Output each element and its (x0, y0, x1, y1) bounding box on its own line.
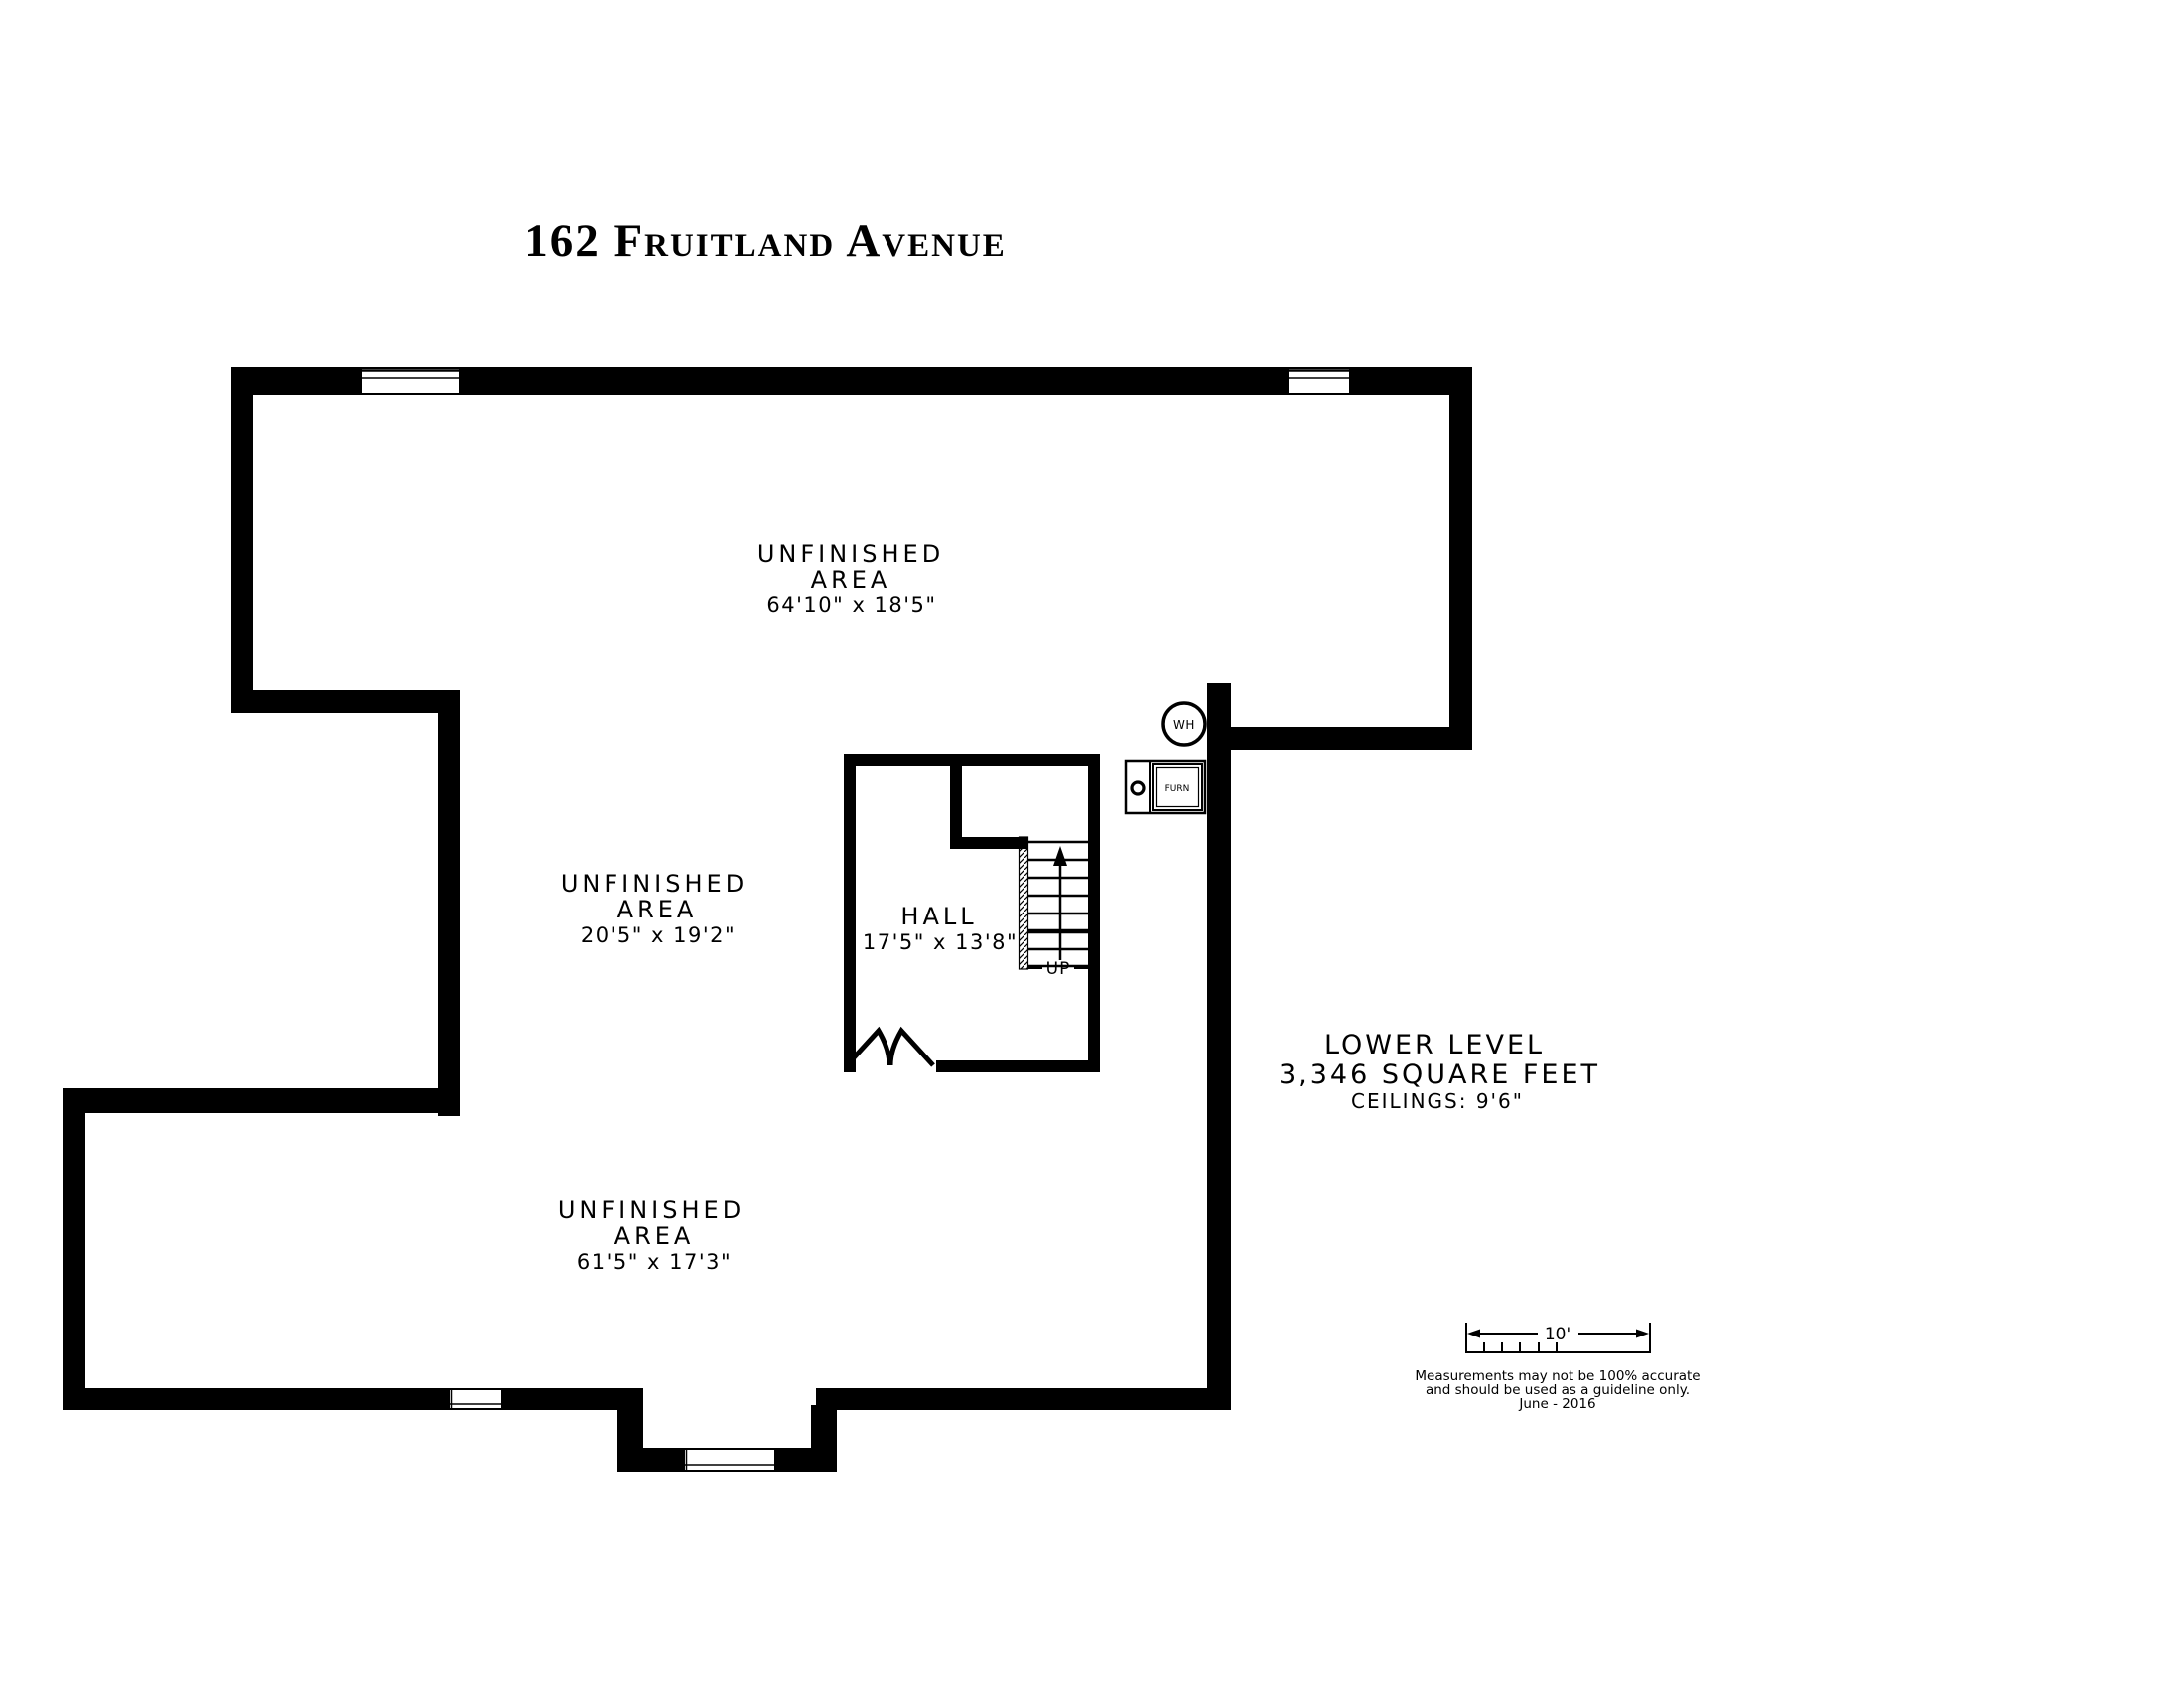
wall-upper-section-bottom (1207, 727, 1472, 750)
furnace-pipe-icon (1132, 782, 1144, 794)
room-name: HALL (900, 903, 977, 930)
stairs-up-label: UP (1046, 959, 1071, 979)
window-bottom (450, 1390, 501, 1408)
room-label-hall: HALL 17'5" x 13'8" (863, 903, 1018, 954)
up-arrow-icon (1053, 846, 1067, 960)
hall-wall-left (844, 754, 856, 1072)
page-title: 162 Fruitland Avenue (524, 215, 1007, 267)
room-name-line1: UNFINISHED (558, 1196, 745, 1224)
window-bay (685, 1450, 774, 1470)
exterior-walls (63, 367, 1472, 1472)
staircase: UP (1020, 837, 1089, 979)
floor-plan-page: 162 Fruitland Avenue (0, 0, 2184, 1688)
disclaimer: Measurements may not be 100% accurate an… (1415, 1368, 1700, 1412)
room-dimensions: 64'10" x 18'5" (766, 593, 936, 617)
wall-step-upper (231, 690, 460, 713)
wall-step-lower (63, 1088, 460, 1113)
room-dimensions: 61'5" x 17'3" (577, 1250, 732, 1274)
furnace-symbol: FURN (1126, 761, 1205, 813)
disclaimer-line3: June - 2016 (1518, 1396, 1595, 1412)
stair-railing (1020, 837, 1028, 969)
wall-right-upper (1449, 367, 1472, 750)
water-heater-symbol: WH (1163, 703, 1205, 745)
hall-closet-wall-vertical (950, 766, 962, 849)
room-name-line2: AREA (811, 566, 891, 594)
wall-long-vertical (1207, 683, 1231, 1408)
hall-wall-right (1088, 754, 1100, 1072)
room-name-line2: AREA (617, 896, 698, 923)
scale-bar-arrow-right (1636, 1330, 1649, 1338)
level-ceilings: CEILINGS: 9'6" (1351, 1089, 1524, 1113)
room-dimensions: 17'5" x 13'8" (863, 930, 1018, 954)
room-label-unfinished-bottom: UNFINISHED AREA 61'5" x 17'3" (558, 1196, 745, 1274)
room-label-unfinished-top: UNFINISHED AREA 64'10" x 18'5" (757, 540, 944, 617)
wall-left-lower (63, 1088, 85, 1410)
window-top-right (1289, 369, 1349, 393)
level-summary: LOWER LEVEL 3,346 SQUARE FEET CEILINGS: … (1279, 1030, 1600, 1113)
wall-mid-left-vertical (438, 690, 460, 1116)
wall-bottom-right-segment (816, 1388, 1231, 1410)
wall-left-upper (231, 367, 253, 713)
window-top-left (362, 369, 459, 393)
room-name-line1: UNFINISHED (757, 540, 944, 568)
room-name-line2: AREA (614, 1222, 695, 1250)
hall-wall-top (844, 754, 1100, 766)
scale-bar-length-label: 10' (1545, 1325, 1570, 1344)
furnace-label: FURN (1165, 784, 1190, 794)
level-area: 3,346 SQUARE FEET (1279, 1059, 1600, 1090)
wall-bottom-left-segment (63, 1388, 643, 1410)
hall-closet-wall-horizontal (950, 837, 1027, 849)
double-door (847, 1031, 933, 1065)
scale-bar-arrow-left (1467, 1330, 1480, 1338)
water-heater-label: WH (1173, 718, 1195, 732)
room-name-line1: UNFINISHED (561, 870, 748, 898)
hall-wall-bottom (936, 1060, 1100, 1072)
room-label-unfinished-middle: UNFINISHED AREA 20'5" x 19'2" (561, 870, 748, 947)
level-name: LOWER LEVEL (1324, 1030, 1545, 1060)
wall-bay-right (811, 1405, 837, 1472)
floor-plan-drawing: 162 Fruitland Avenue (0, 0, 2184, 1688)
scale-bar: 10' (1466, 1323, 1650, 1353)
room-dimensions: 20'5" x 19'2" (581, 923, 736, 947)
